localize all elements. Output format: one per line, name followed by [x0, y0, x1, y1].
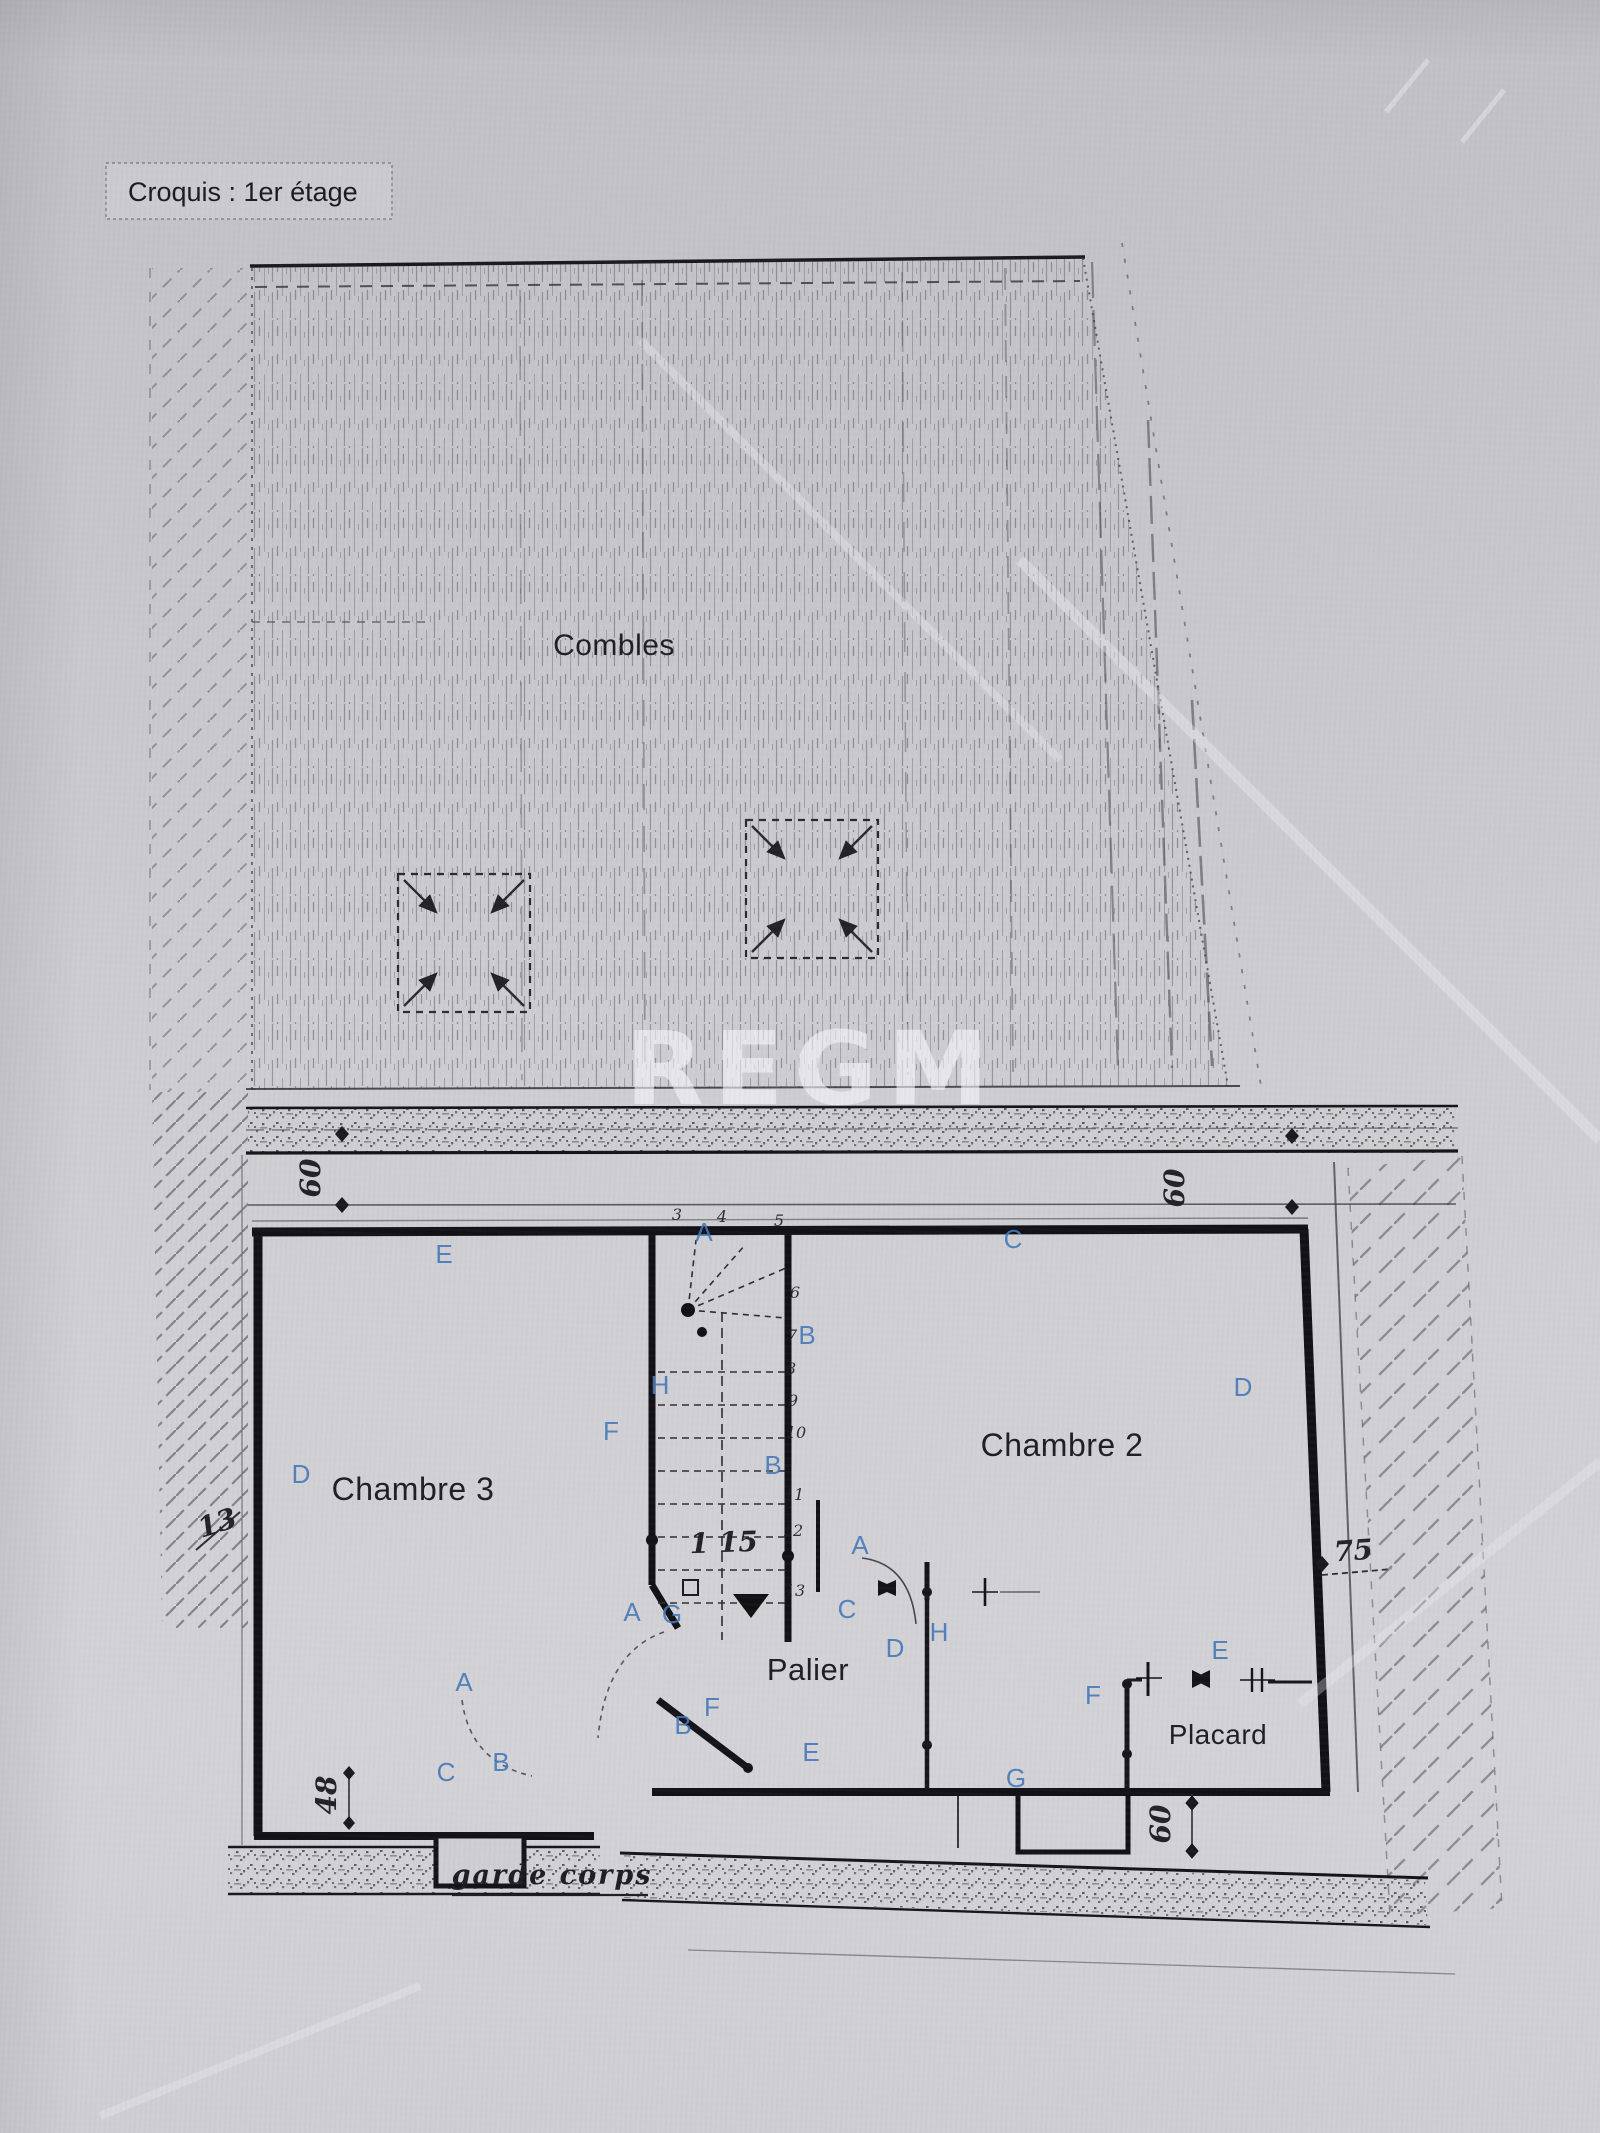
- right-wall: [1304, 1229, 1326, 1792]
- stair-number: 4: [716, 1207, 727, 1226]
- scanned-floor-plan: Croquis : 1er étage: [0, 0, 1600, 2133]
- stair-number: 12: [783, 1521, 803, 1540]
- stair-number: 6: [790, 1283, 800, 1302]
- bottom-wall-bands: [228, 1766, 1455, 1974]
- floor-plan-drawing: Croquis : 1er étage: [0, 0, 1600, 2133]
- stair-direction-arrow: [733, 1594, 769, 1618]
- room-label: Chambre 2: [981, 1427, 1144, 1463]
- stair-number: 7: [787, 1326, 798, 1345]
- wall-letter: B: [798, 1320, 815, 1350]
- dimension-label: 75: [1333, 1533, 1374, 1569]
- wall-letter: F: [704, 1692, 720, 1722]
- wall-letter: E: [802, 1737, 819, 1767]
- stair-number: 10: [786, 1423, 806, 1442]
- wall-letter: F: [1085, 1680, 1101, 1710]
- combles-region: [250, 243, 1262, 1092]
- stair-number: 8: [786, 1359, 796, 1378]
- doors: [462, 1558, 1312, 1790]
- room-label: Palier: [767, 1652, 849, 1687]
- page-title: Croquis : 1er étage: [128, 177, 358, 207]
- dimension-label: 60: [1144, 1804, 1177, 1843]
- dimension-label: 1 15: [689, 1525, 758, 1560]
- wall-letter: G: [662, 1599, 682, 1629]
- stair-number: 13: [785, 1581, 805, 1600]
- wall-letter: A: [695, 1217, 713, 1247]
- wall-letter: A: [851, 1530, 869, 1560]
- dimension-label: 60: [294, 1158, 327, 1197]
- annotations: garde corps: [452, 1860, 653, 1891]
- handwritten-note: garde corps: [452, 1860, 653, 1891]
- door-leaf: [658, 1700, 748, 1768]
- wall-letter: H: [930, 1617, 949, 1647]
- room-label: Placard: [1169, 1719, 1267, 1750]
- wall-letter: B: [492, 1747, 509, 1777]
- wall-letter: D: [1234, 1372, 1253, 1402]
- stair-number: 3: [672, 1205, 682, 1224]
- stair-number: 5: [774, 1211, 784, 1230]
- watermark-text: REGM: [625, 1010, 998, 1129]
- wall-letter: A: [455, 1667, 473, 1697]
- wall-letter: C: [1004, 1224, 1023, 1254]
- wall-letter: D: [886, 1633, 905, 1663]
- stair-number: 9: [788, 1391, 798, 1410]
- wall-letter: F: [603, 1416, 619, 1446]
- dimension-label: 60: [1158, 1168, 1191, 1207]
- wall-letter: B: [674, 1710, 691, 1740]
- wall-letter: B: [764, 1450, 781, 1480]
- wall-letter: G: [1006, 1763, 1026, 1793]
- dimension-label: 48: [310, 1776, 343, 1815]
- room-label: Combles: [553, 629, 675, 662]
- wall-letter: C: [437, 1757, 456, 1787]
- wall-letter: E: [435, 1239, 452, 1269]
- wall-letter: D: [292, 1459, 311, 1489]
- wall-letter: E: [1211, 1635, 1228, 1665]
- room-label: Chambre 3: [332, 1471, 495, 1507]
- wall-letter: A: [623, 1597, 641, 1627]
- wall-letter: H: [651, 1370, 670, 1400]
- wall-letter: C: [838, 1594, 857, 1624]
- title-box: Croquis : 1er étage: [106, 163, 392, 219]
- left-exterior-hatch: [150, 268, 248, 1628]
- stair-number: 11: [784, 1485, 804, 1504]
